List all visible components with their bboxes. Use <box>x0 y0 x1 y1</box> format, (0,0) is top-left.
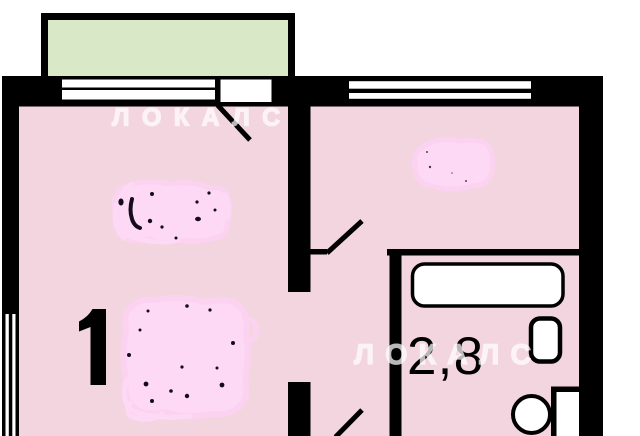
svg-text:ЛОКАЛС: ЛОКАЛС <box>354 339 542 371</box>
svg-text:ЛОКАЛС: ЛОКАЛС <box>112 104 293 132</box>
